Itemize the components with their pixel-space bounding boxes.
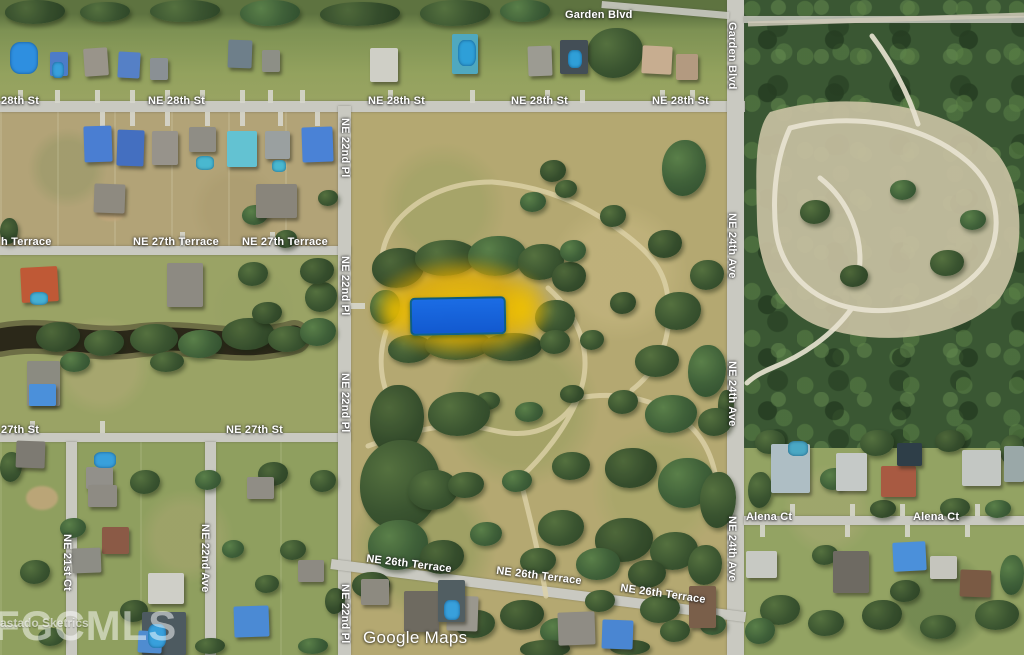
satellite-map[interactable]: Garden BlvdGarden Blvd28th StNE 28th StN… — [0, 0, 1024, 655]
street-label: NE 22nd Pl — [339, 373, 351, 432]
street-labels-layer: Garden BlvdGarden Blvd28th StNE 28th StN… — [0, 0, 1024, 655]
street-label: NE 22nd Pl — [339, 118, 351, 177]
street-label: NE 22nd Ave — [199, 524, 211, 593]
street-label: NE 27th Terrace — [242, 236, 328, 248]
street-label: NE 27th St — [226, 424, 283, 436]
street-label: Alena Ct — [746, 511, 792, 523]
street-label: NE 28th St — [148, 95, 205, 107]
street-label: NE 24th Ave — [726, 213, 738, 279]
street-label: NE 26th Terrace — [366, 553, 453, 575]
street-label: 27th St — [1, 424, 39, 436]
street-label: Alena Ct — [913, 511, 959, 523]
street-label: NE 26th Terrace — [620, 582, 707, 606]
street-label: NE 28th St — [652, 95, 709, 107]
street-label: 28th St — [1, 95, 39, 107]
street-label: NE 27th Terrace — [133, 236, 219, 248]
street-label: NE 24th Ave — [726, 361, 738, 427]
street-label: NE 21st Ct — [61, 534, 73, 591]
street-label: Garden Blvd — [726, 22, 738, 90]
street-label: h Terrace — [1, 236, 52, 248]
street-label: NE 22nd Pl — [339, 256, 351, 315]
street-label: NE 22nd Pl — [339, 584, 351, 643]
street-label: NE 24th Ave — [726, 516, 738, 582]
street-label: NE 28th St — [511, 95, 568, 107]
google-maps-attribution[interactable]: Google Maps — [363, 628, 467, 648]
street-label: Garden Blvd — [565, 9, 633, 21]
street-label: NE 28th St — [368, 95, 425, 107]
street-label: NE 26th Terrace — [496, 565, 583, 587]
